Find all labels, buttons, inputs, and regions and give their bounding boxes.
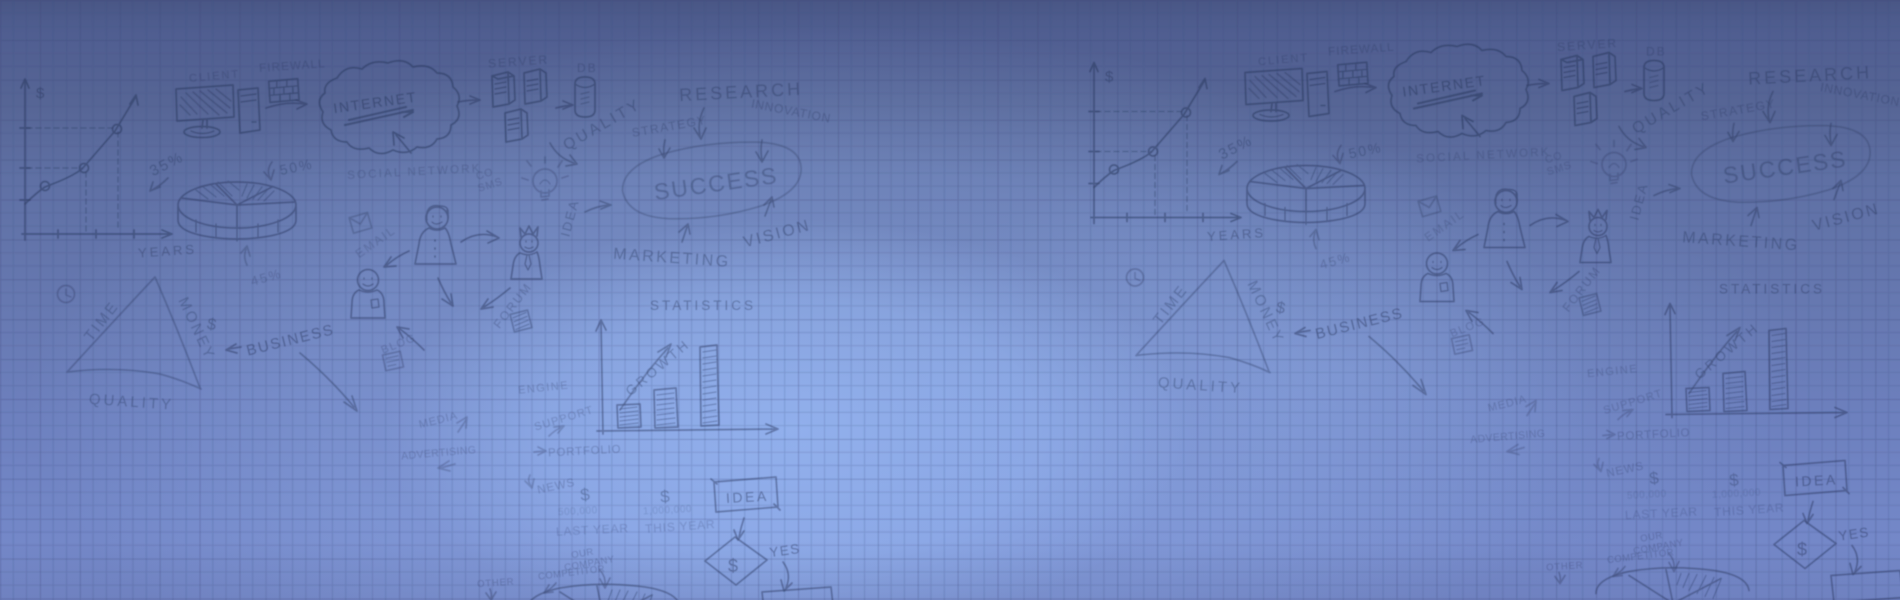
svg-text:IDEA: IDEA [726,488,769,506]
svg-text:500,000: 500,000 [558,505,598,518]
svg-text:$: $ [36,85,45,102]
svg-text:STATISTICS: STATISTICS [650,298,756,313]
svg-text:DB: DB [577,61,598,75]
svg-text:$: $ [660,487,671,507]
